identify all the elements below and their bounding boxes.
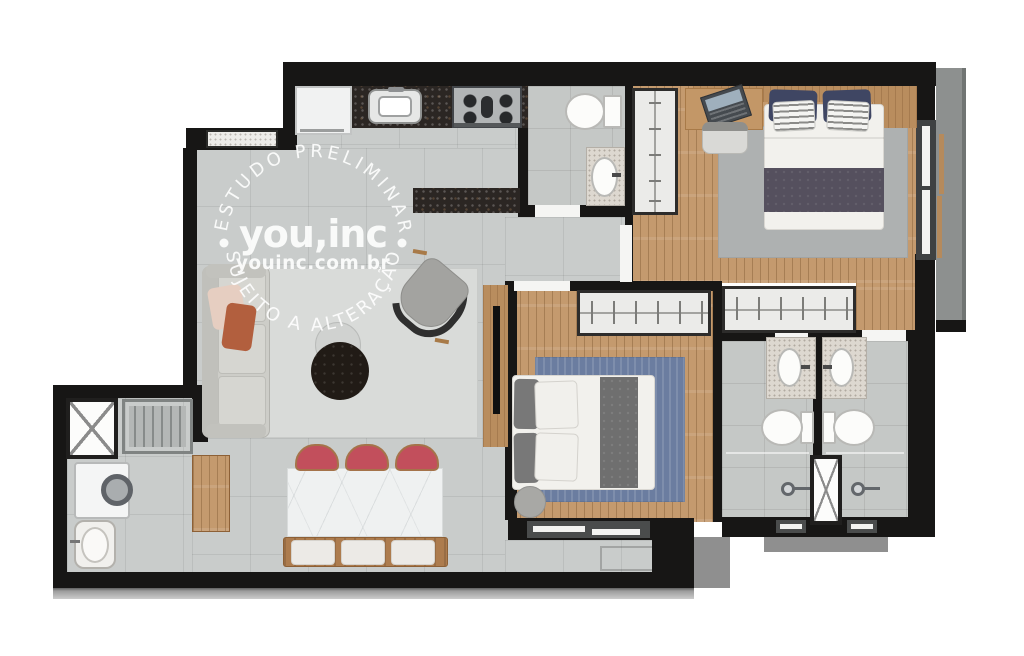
vanity-sink (829, 348, 854, 387)
ventilation-shaft (810, 455, 842, 525)
hall-floor (505, 217, 632, 283)
door-opening-bedroom1 (620, 225, 632, 282)
shower-threshold-line (726, 452, 809, 454)
sofa-pillow-rust (221, 302, 257, 352)
bedroom2-window-pane (533, 526, 585, 532)
wall-left (183, 148, 197, 394)
wardrobe-handle (802, 297, 804, 320)
wardrobe-handle (824, 297, 826, 320)
bedroom1-wardrobe (632, 88, 678, 215)
drying-rack (122, 399, 193, 454)
tv (493, 306, 500, 414)
bathroom3-window-pane (851, 524, 873, 529)
vanity-faucet (612, 173, 621, 177)
wardrobe-handle (780, 297, 782, 320)
wall-balcony-cap (936, 320, 966, 332)
balcony-edge-line (962, 68, 966, 322)
wardrobe-handle (649, 180, 661, 182)
toilet-tank (603, 95, 622, 128)
closet-dresser (722, 286, 856, 333)
bedroom2-window-pane (592, 529, 640, 535)
wardrobe-handle (649, 128, 661, 130)
shower-arm (864, 487, 880, 490)
refrigerator-handle (300, 129, 344, 132)
bench-cushion (291, 540, 335, 565)
balcony-brise-bar (937, 196, 942, 258)
bedroom2-wardrobe (577, 290, 711, 336)
wardrobe-handle (846, 297, 848, 320)
wall-bedroom2-right (713, 281, 722, 522)
wardrobe-handle (679, 301, 681, 324)
coffee-table-dark (311, 342, 369, 400)
entry-porch (694, 537, 730, 588)
bed1-duvet-fold (764, 137, 884, 139)
bed1-runner (764, 168, 884, 212)
bench-cushion (391, 540, 435, 565)
refrigerator (295, 86, 352, 135)
sideboard (192, 455, 230, 532)
wardrobe-handle (649, 154, 661, 156)
bed1-pillow-striped (826, 100, 870, 132)
pouf (514, 486, 546, 518)
sofa-armrest (206, 424, 266, 438)
wall-bedroom1-right-top (917, 68, 935, 126)
vanity-faucet (823, 365, 832, 369)
sofa-cushion (218, 376, 266, 426)
bed2-pillow-white (534, 380, 579, 429)
wardrobe-handle (736, 297, 738, 320)
wall-top (283, 62, 936, 86)
bed2-runner (600, 377, 638, 488)
vanity-faucet (801, 365, 810, 369)
bedroom1-window-pane (922, 126, 930, 186)
door-opening-bathroom3 (862, 330, 906, 341)
wardrobe-handle (649, 200, 661, 202)
wardrobe-handle (591, 301, 593, 324)
wardrobe-handle (657, 301, 659, 324)
toilet-bowl (833, 409, 875, 446)
cooktop-center-grate (481, 96, 493, 118)
bed1-pillow-striped (772, 100, 816, 132)
laundry-sink-basin (81, 527, 109, 563)
balcony-brise-bar (939, 134, 944, 194)
wardrobe-handle (701, 301, 703, 324)
sofa-armrest (206, 264, 266, 278)
bench-cushion (341, 540, 385, 565)
toilet-bowl (761, 409, 803, 446)
wall-bathrooms-right (908, 330, 935, 537)
dining-table (287, 468, 443, 537)
wall-bottom (53, 572, 694, 588)
washing-machine-door (101, 474, 133, 506)
shower-threshold-line (826, 452, 904, 454)
wardrobe-handle (758, 297, 760, 320)
ventilation-shaft (66, 398, 118, 459)
bathroom2-window-pane (780, 524, 802, 529)
balcony-ledge (936, 68, 962, 322)
bar-counter (413, 188, 520, 213)
bed2-pillow-white (534, 432, 579, 481)
shower-head (851, 482, 865, 496)
door-opening-bedroom2 (514, 281, 570, 291)
desk-chair-back (702, 122, 748, 131)
bottom-exterior-band (53, 588, 694, 599)
bedroom1-window-pane (922, 190, 930, 254)
wall-corridor-right (915, 254, 935, 335)
laundry-faucet (70, 540, 80, 543)
kitchen-sink-basin (378, 96, 412, 117)
cooktop-controls (454, 123, 520, 127)
wardrobe-handle (635, 301, 637, 324)
door-opening-bathroom1 (535, 205, 580, 217)
bath-corridor-wood-floor (856, 283, 917, 333)
wardrobe-handle (613, 301, 615, 324)
floor-plan-image: ESTUDO PRELIMINAR SUJEITO A ALTERAÇÃO yo… (0, 0, 1024, 656)
wall-corner-block (652, 518, 694, 588)
vanity-sink (591, 157, 618, 197)
wall-service-left (53, 385, 67, 588)
toilet-bowl (565, 93, 605, 130)
shower-head (781, 482, 795, 496)
vanity-sink (777, 348, 802, 387)
kitchen-faucet (388, 87, 404, 92)
kitchen-window (206, 130, 278, 148)
wall-service-top (53, 385, 207, 398)
wardrobe-handle (649, 102, 661, 104)
